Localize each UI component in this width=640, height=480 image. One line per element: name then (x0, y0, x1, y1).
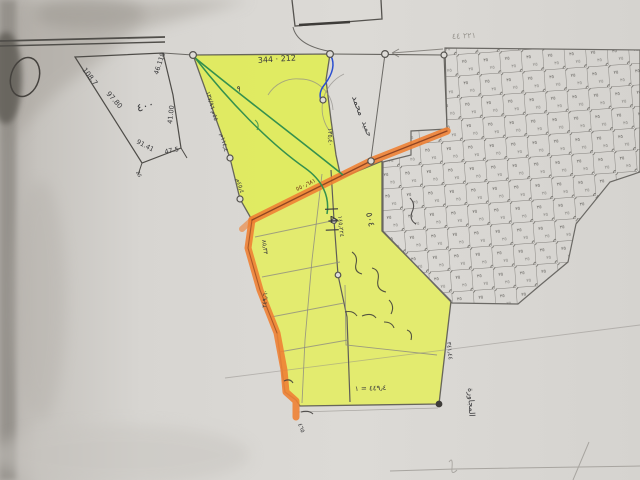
photographed-survey-map: ٢٥ ٢٥ (0, 0, 640, 480)
map-annotation: المجاورة (466, 388, 476, 417)
map-annotation: ١٣٥٫٤٠ (326, 128, 334, 146)
corner-dot (436, 401, 442, 407)
cadastral-sketch-map: ٢٥ ٢٥ (0, 0, 640, 480)
map-annotation: ٢٢١ ٤٤ (452, 31, 476, 41)
map-annotation: ٤٤٩٫٤ = ١ (355, 384, 387, 393)
